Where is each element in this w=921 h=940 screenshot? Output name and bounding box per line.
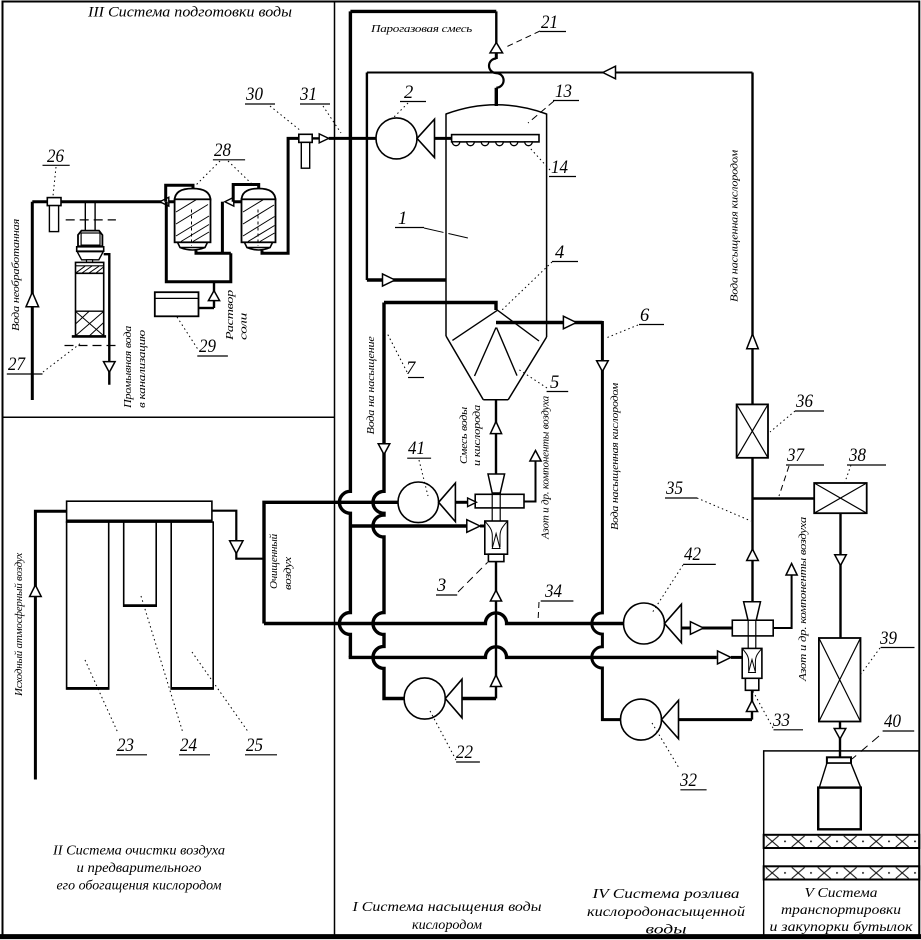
svg-text:Парогазовая смесь: Парогазовая смесь bbox=[370, 24, 473, 35]
svg-text:в канализацию: в канализацию bbox=[137, 329, 148, 408]
svg-text:Азот и др. компоненты воздуха: Азот и др. компоненты воздуха bbox=[541, 396, 552, 540]
svg-text:воды: воды bbox=[646, 922, 687, 937]
svg-text:5: 5 bbox=[550, 373, 559, 393]
svg-text:38: 38 bbox=[848, 446, 867, 466]
svg-text:6: 6 bbox=[640, 306, 650, 326]
svg-text:32: 32 bbox=[679, 771, 697, 791]
svg-text:40: 40 bbox=[884, 712, 902, 732]
svg-text:34: 34 bbox=[544, 582, 562, 602]
svg-text:Вода на насыщение: Вода на насыщение bbox=[366, 336, 377, 435]
svg-text:Вода насыщенная кислородом: Вода насыщенная кислородом bbox=[610, 382, 621, 530]
svg-text:транспортировки: транспортировки bbox=[781, 902, 901, 917]
svg-text:30: 30 bbox=[245, 85, 264, 105]
svg-text:41: 41 bbox=[408, 439, 425, 459]
svg-text:35: 35 bbox=[665, 479, 683, 499]
svg-text:Очищенный: Очищенный bbox=[269, 533, 280, 589]
svg-text:и закупорки бутылок: и закупорки бутылок bbox=[770, 919, 914, 934]
svg-text:25: 25 bbox=[246, 736, 263, 756]
svg-text:13: 13 bbox=[555, 82, 572, 102]
svg-text:37: 37 bbox=[786, 446, 805, 466]
svg-text:соли: соли bbox=[239, 313, 250, 340]
svg-text:39: 39 bbox=[879, 629, 897, 649]
svg-text:и кислорода: и кислорода bbox=[472, 405, 483, 466]
svg-text:2: 2 bbox=[404, 83, 413, 103]
svg-text:его обогащения кислородом: его обогащения кислородом bbox=[57, 878, 222, 893]
svg-text:29: 29 bbox=[199, 337, 216, 357]
svg-text:Вода насыщенная кислородом: Вода насыщенная кислородом bbox=[730, 149, 741, 302]
svg-text:IV Система розлива: IV Система розлива bbox=[591, 886, 740, 901]
svg-text:7: 7 bbox=[406, 359, 416, 379]
svg-text:III Система подготовки воды: III Система подготовки воды bbox=[87, 5, 292, 21]
svg-text:V Система: V Система bbox=[805, 885, 878, 900]
svg-text:36: 36 bbox=[795, 392, 814, 412]
svg-text:кислородом: кислородом bbox=[412, 917, 482, 932]
svg-text:1: 1 bbox=[398, 209, 407, 229]
svg-text:26: 26 bbox=[47, 147, 65, 167]
svg-text:Раствор: Раствор bbox=[225, 290, 236, 341]
svg-text:II Система очистки воздуха: II Система очистки воздуха bbox=[52, 843, 225, 858]
svg-text:14: 14 bbox=[551, 158, 568, 178]
svg-text:24: 24 bbox=[180, 736, 197, 756]
svg-text:22: 22 bbox=[456, 743, 473, 763]
svg-text:I Система насыщения воды: I Система насыщения воды bbox=[351, 899, 541, 914]
svg-text:42: 42 bbox=[684, 545, 701, 565]
svg-text:28: 28 bbox=[214, 141, 232, 161]
svg-text:3: 3 bbox=[436, 576, 446, 596]
svg-text:33: 33 bbox=[772, 711, 790, 731]
svg-text:Вода необработанная: Вода необработанная bbox=[11, 219, 22, 331]
svg-text:воздух: воздух bbox=[283, 556, 294, 590]
svg-text:Азот и др. компоненты воздуха: Азот и др. компоненты воздуха bbox=[798, 517, 809, 682]
svg-text:кислородонасыщенной: кислородонасыщенной bbox=[587, 904, 745, 919]
svg-text:Промывная вода: Промывная вода bbox=[123, 326, 134, 409]
svg-text:4: 4 bbox=[555, 243, 564, 263]
svg-text:Исходный атмосферный воздух: Исходный атмосферный воздух bbox=[14, 552, 25, 697]
svg-text:27: 27 bbox=[8, 355, 26, 375]
svg-text:и предварительного: и предварительного bbox=[77, 860, 202, 875]
svg-text:Смесь воды: Смесь воды bbox=[459, 407, 470, 464]
svg-text:23: 23 bbox=[117, 736, 134, 756]
svg-text:31: 31 bbox=[299, 85, 317, 105]
svg-text:21: 21 bbox=[541, 13, 558, 33]
